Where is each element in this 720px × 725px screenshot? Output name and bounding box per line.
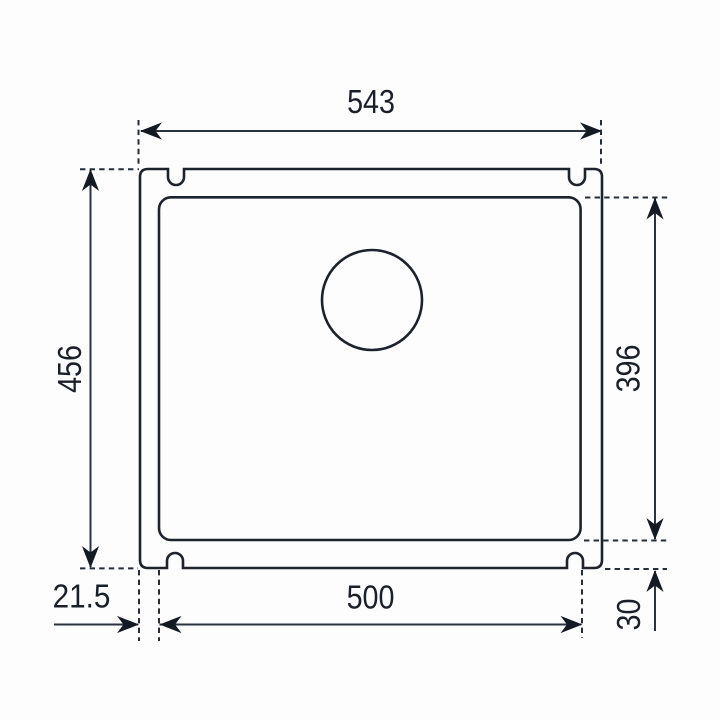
svg-text:500: 500 — [347, 579, 395, 616]
svg-text:543: 543 — [347, 83, 395, 120]
svg-text:396: 396 — [610, 345, 647, 393]
svg-text:456: 456 — [51, 345, 88, 393]
svg-text:30: 30 — [610, 599, 647, 631]
svg-text:21.5: 21.5 — [53, 578, 111, 615]
